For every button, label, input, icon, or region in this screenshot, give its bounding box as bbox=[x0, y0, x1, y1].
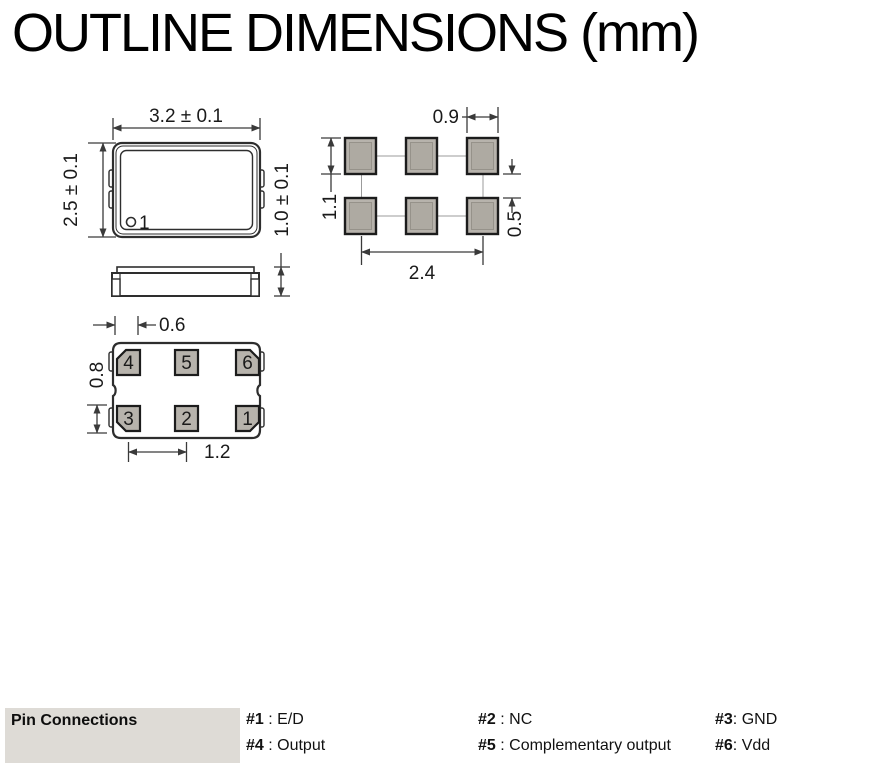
land-pattern-pad-texture bbox=[350, 143, 494, 230]
pad-number: 4 bbox=[123, 353, 134, 374]
package-top-view bbox=[109, 143, 264, 237]
bottom-pad-height-label: 0.8 bbox=[87, 362, 108, 388]
pin-function: : Complementary output bbox=[496, 737, 671, 754]
land-pattern-figure: 0.9 1.1 0.5 2.4 bbox=[315, 95, 550, 285]
pin-number: #3 bbox=[715, 711, 733, 728]
dimension-bottom-pitch bbox=[129, 442, 187, 462]
land-pad-height-label: 1.1 bbox=[320, 194, 341, 220]
pin-entry-5: #5 : Complementary output bbox=[478, 737, 671, 755]
pad-number: 1 bbox=[242, 409, 253, 430]
pin-entry-4: #4 : Output bbox=[246, 737, 325, 755]
pin-entry-6: #6: Vdd bbox=[715, 737, 770, 755]
pad-number: 2 bbox=[181, 409, 192, 430]
dimension-bottom-pad-width bbox=[93, 316, 156, 335]
pad-number: 3 bbox=[123, 409, 134, 430]
dimension-land-row-gap bbox=[503, 159, 521, 213]
body-width-label: 3.2 ± 0.1 bbox=[149, 106, 223, 127]
pin-function: : NC bbox=[496, 711, 532, 728]
top-view-figure: 3.2 ± 0.1 2.5 ± 0.1 1 bbox=[50, 95, 305, 310]
pin-number: #6 bbox=[715, 737, 733, 754]
pad-number: 6 bbox=[242, 353, 253, 374]
outline-dimensions-page: OUTLINE DIMENSIONS (mm) 3.2 ± 0.1 2.5 ± … bbox=[0, 0, 869, 766]
page-title: OUTLINE DIMENSIONS (mm) bbox=[12, 2, 698, 64]
dimension-bottom-pad-height bbox=[87, 405, 107, 433]
pin1-index-dot bbox=[127, 218, 136, 227]
package-side-view bbox=[112, 267, 259, 296]
land-span-label: 2.4 bbox=[409, 263, 436, 284]
land-pad-width-label: 0.9 bbox=[433, 107, 459, 128]
pin-function: : GND bbox=[733, 711, 777, 728]
pin-function: : E/D bbox=[264, 711, 304, 728]
pin-entry-2: #2 : NC bbox=[478, 711, 532, 729]
pin-number: #2 bbox=[478, 711, 496, 728]
bottom-view-figure: 4 5 6 3 2 1 0.6 0.8 1.2 bbox=[55, 310, 305, 475]
body-thickness-label: 1.0 ± 0.1 bbox=[272, 163, 293, 237]
land-row-gap-label: 0.5 bbox=[505, 211, 526, 237]
pin-function: : Output bbox=[264, 737, 325, 754]
pad-number: 5 bbox=[181, 353, 192, 374]
pin-function: : Vdd bbox=[733, 737, 770, 754]
dimension-body-thickness bbox=[274, 253, 290, 296]
pin-entry-3: #3: GND bbox=[715, 711, 777, 729]
pin-number: #1 bbox=[246, 711, 264, 728]
body-height-label: 2.5 ± 0.1 bbox=[61, 153, 82, 227]
pin-entry-1: #1 : E/D bbox=[246, 711, 304, 729]
dimension-land-pad-width bbox=[462, 107, 498, 133]
pin1-index-label: 1 bbox=[139, 213, 150, 234]
bottom-pad-width-label: 0.6 bbox=[159, 315, 185, 336]
dimension-body-height bbox=[88, 143, 116, 237]
pin-connections-heading: Pin Connections bbox=[11, 712, 137, 730]
pin-number: #4 bbox=[246, 737, 264, 754]
dimension-land-span bbox=[362, 236, 484, 265]
pin-number: #5 bbox=[478, 737, 496, 754]
bottom-pitch-label: 1.2 bbox=[204, 442, 230, 463]
dimension-land-pad-height bbox=[321, 138, 341, 192]
